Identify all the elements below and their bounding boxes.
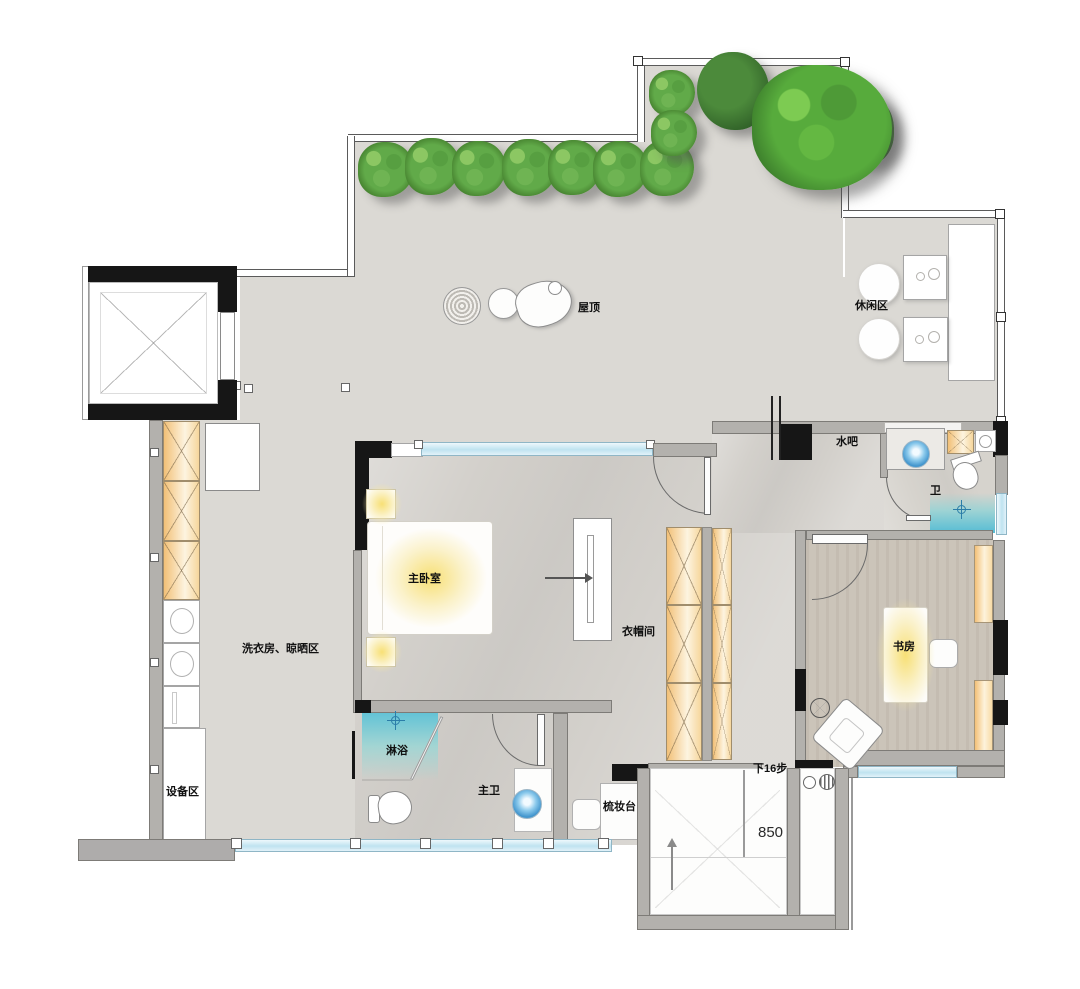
laundry-sink-cabinet (163, 686, 200, 728)
nightstand-glow (362, 631, 402, 673)
cabinet-detail (172, 692, 177, 724)
chair-glyph (915, 335, 924, 344)
stair-arrow-shaft (671, 845, 673, 890)
cloakroom-divider-wall (702, 527, 712, 761)
floor-plan: 屋顶 休闲区 (0, 0, 1080, 989)
wall-black-segment (993, 700, 1008, 725)
study-cabinet (974, 545, 993, 623)
wardrobe (712, 528, 732, 605)
leisure-table (858, 263, 900, 305)
railing-left-vertical (347, 136, 355, 276)
study-bottom-wall (843, 750, 1005, 766)
dressing-table-label: 梳妆台 (603, 801, 636, 813)
stair-divider (743, 770, 745, 858)
bedroom-wall-black (355, 441, 392, 458)
leisure-chair (903, 317, 948, 362)
stairs-down-label: 下16步 (753, 763, 787, 775)
dressing-stool (572, 799, 601, 830)
wc-side-window (996, 493, 1007, 535)
washing-machine (163, 600, 200, 643)
cloakroom-door-leaf (704, 457, 711, 515)
tv-pointer-arrow (585, 573, 593, 583)
elevator-door (220, 312, 235, 380)
study-window (858, 766, 957, 778)
laundry-counter (205, 423, 260, 491)
cloakroom-label: 衣帽间 (622, 626, 655, 638)
shower-curb (362, 779, 412, 781)
chair-glyph (928, 268, 940, 280)
laundry-label: 洗衣房、晾晒区 (242, 643, 319, 655)
window-mullion (231, 838, 242, 849)
masterbath-sink (512, 789, 542, 819)
masterbath-right-wall (553, 713, 568, 845)
chair-glyph (916, 272, 925, 281)
wall-black-segment (355, 700, 371, 713)
masterbath-label: 主卫 (478, 785, 500, 797)
round-mat (443, 287, 481, 325)
pipe-icon (819, 774, 835, 790)
elevator-left-wall (82, 266, 89, 420)
master-bedroom-label: 主卧室 (408, 573, 441, 585)
washing-machine (163, 643, 200, 686)
wall-black-segment (780, 424, 812, 460)
wardrobe (666, 605, 702, 683)
shaft-wall-right (835, 768, 849, 930)
window-mullion (420, 838, 431, 849)
wc-right-wall (995, 455, 1008, 495)
stair-wall-left (637, 768, 650, 930)
elevator-wall-bottom (88, 404, 237, 420)
study-label: 书房 (893, 641, 915, 653)
wall-marker (150, 765, 159, 774)
wall-marker (150, 658, 159, 667)
railing-post (840, 57, 850, 67)
stair-wall-bottom (637, 915, 848, 930)
study-door-leaf (812, 534, 868, 544)
section-marker (779, 396, 781, 460)
wall-black-segment (795, 669, 806, 711)
leisure-area-label: 休闲区 (855, 300, 888, 312)
railing-step-vertical (637, 58, 645, 142)
nightstand-glow (362, 483, 402, 525)
cloakroom-door-wall (653, 443, 717, 457)
stair-flight-lines (655, 790, 780, 908)
railing-upper-left (348, 134, 644, 142)
chair-glyph (928, 331, 940, 343)
water-bar-sink (902, 440, 930, 468)
section-marker (771, 396, 773, 460)
service-shaft (800, 768, 835, 915)
wardrobe (666, 527, 702, 605)
railing-left-step (237, 269, 355, 277)
water-bar-label: 水吧 (836, 436, 858, 448)
stair-arrow-head (667, 838, 677, 847)
stair-wall-mid (787, 768, 800, 930)
railing-post (995, 209, 1005, 219)
stair-dimension: 850 (758, 824, 783, 841)
railing-post (996, 312, 1006, 322)
elevator-symbol (100, 292, 207, 394)
washer-drum (170, 608, 194, 634)
desk-glow (876, 598, 935, 712)
wall-marker (150, 553, 159, 562)
exterior-wall-slab (78, 839, 235, 861)
laundry-cabinet (163, 421, 200, 481)
leisure-deck (948, 224, 995, 381)
laundry-left-wall (149, 420, 163, 847)
fixture-glyph (979, 435, 992, 448)
large-tree (752, 65, 892, 190)
wall-stub (957, 766, 1005, 778)
window-mullion (350, 838, 361, 849)
window-mullion (492, 838, 503, 849)
elevator-wall-right (218, 266, 237, 312)
laundry-cabinet (163, 541, 200, 600)
shower-head-icon (387, 720, 405, 721)
wc-label: 卫 (930, 485, 941, 497)
laundry-cabinet (163, 481, 200, 541)
light-symbol (810, 698, 830, 718)
study-left-wall (795, 530, 806, 770)
exterior-outline (851, 778, 853, 930)
shower-head-icon (953, 509, 971, 510)
washer-drum (170, 651, 194, 677)
railing-right-step (843, 210, 1005, 218)
elevator-wall-top (88, 266, 237, 282)
window-mullion (414, 440, 423, 449)
side-table (548, 281, 562, 295)
wc-cabinet (947, 430, 974, 454)
equipment-label: 设备区 (166, 786, 199, 798)
shower-label: 淋浴 (386, 745, 408, 757)
window-mullion (543, 838, 554, 849)
wc-door-leaf (906, 515, 931, 521)
masterbath-top-wall (355, 700, 612, 713)
wardrobe (712, 605, 732, 683)
roof-label: 屋顶 (578, 302, 600, 314)
leisure-chair (903, 255, 947, 300)
wall-marker (150, 448, 159, 457)
wardrobe (712, 683, 732, 760)
bedroom-window (421, 442, 653, 456)
leisure-table (858, 318, 900, 360)
wc-fixture-box (975, 430, 996, 452)
floor-marker (341, 383, 350, 392)
drain-icon (803, 776, 816, 789)
wall-marker (244, 384, 253, 393)
armchair-seat (828, 716, 866, 754)
bedroom-left-wall (353, 550, 362, 713)
window-mullion (598, 838, 609, 849)
railing-post (633, 56, 643, 66)
tv-pointer-line (545, 577, 587, 579)
wardrobe (666, 683, 702, 761)
wall-black-segment (993, 620, 1008, 675)
